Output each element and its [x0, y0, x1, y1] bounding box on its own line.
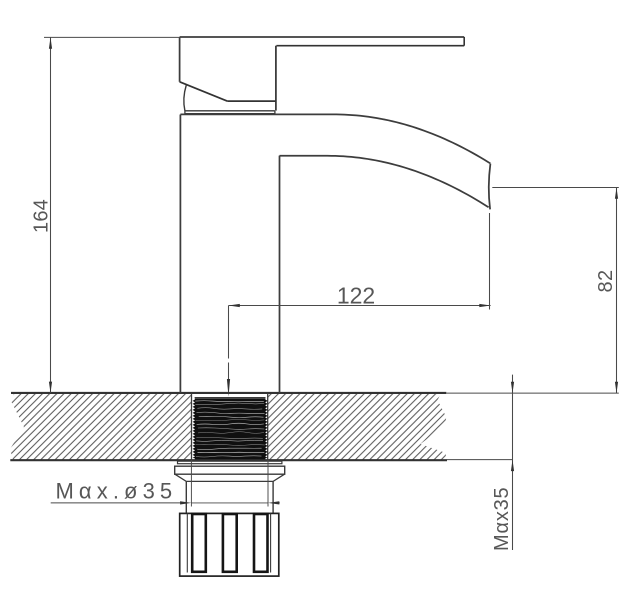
svg-text:122: 122	[337, 283, 375, 309]
svg-text:Mαx35: Mαx35	[491, 487, 513, 551]
svg-text:82: 82	[595, 269, 617, 292]
svg-text:164: 164	[31, 199, 53, 233]
svg-text:Mαx.ø35: Mαx.ø35	[56, 479, 178, 504]
